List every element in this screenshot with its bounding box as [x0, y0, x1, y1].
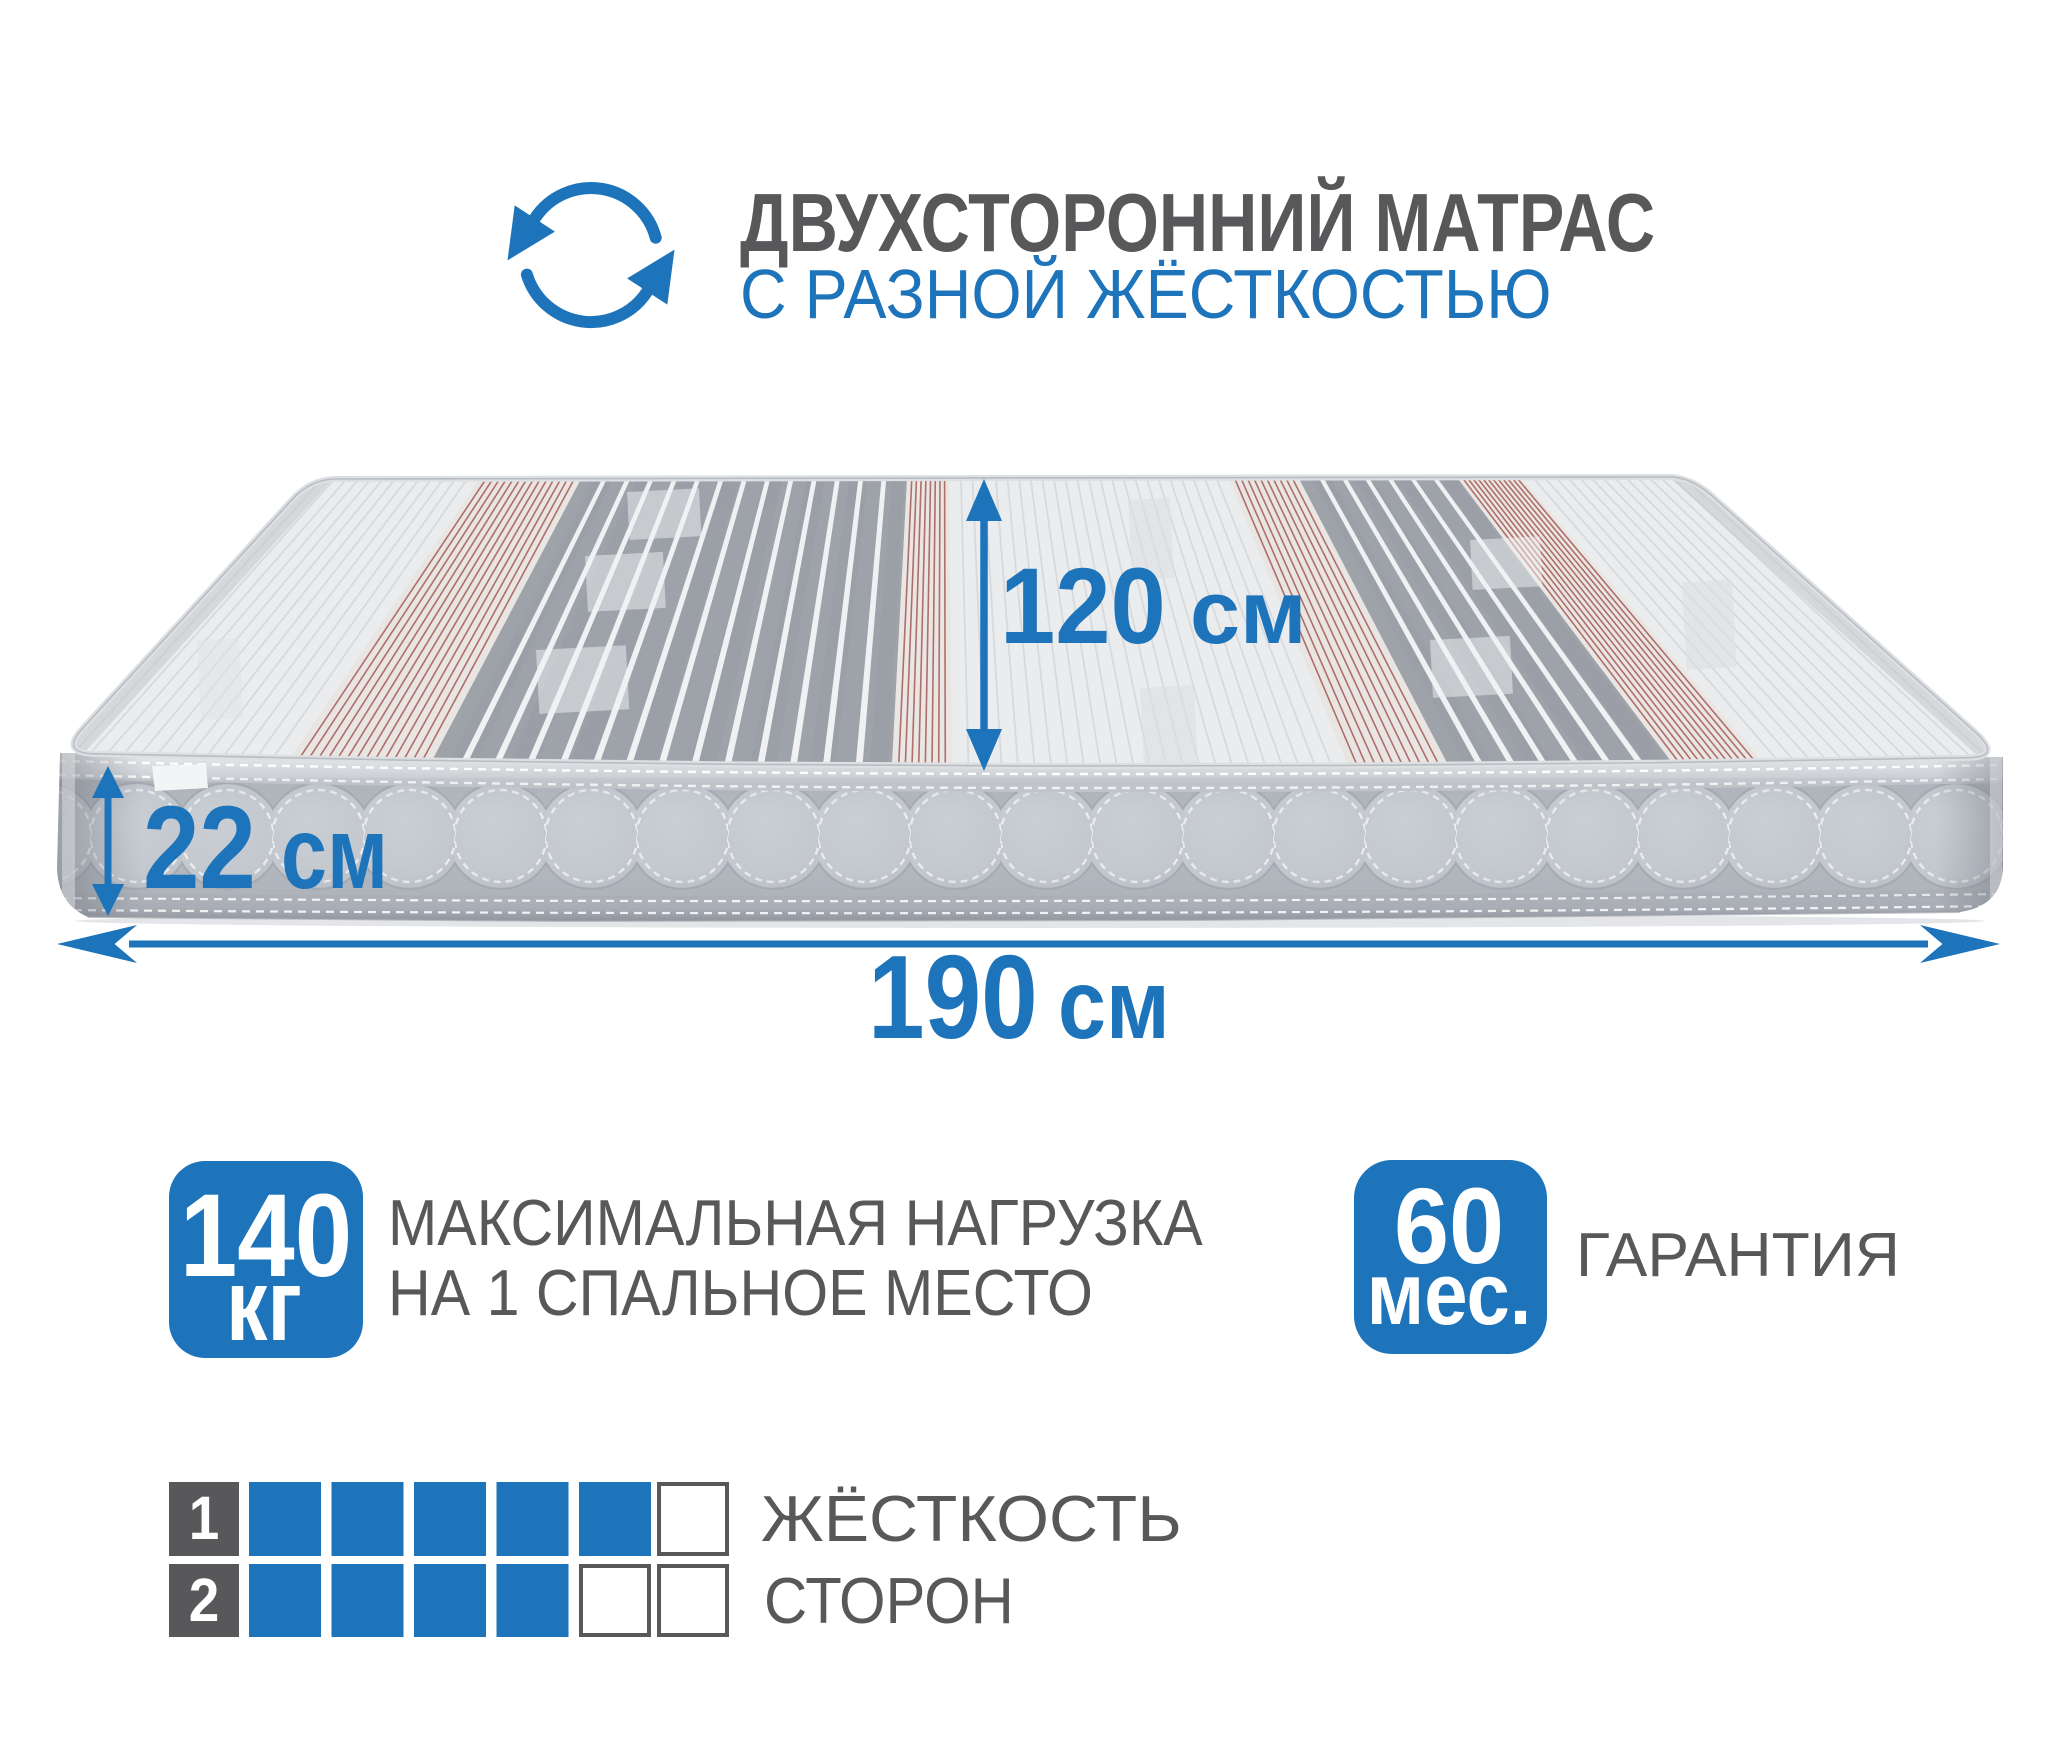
svg-text:190: 190: [868, 932, 1038, 1064]
svg-text:см: см: [1058, 949, 1170, 1059]
svg-text:мес.: мес.: [1367, 1245, 1532, 1343]
svg-text:СТОРОН: СТОРОН: [764, 1565, 1014, 1638]
svg-text:см: см: [281, 796, 388, 910]
svg-text:ЖЁСТКОСТЬ: ЖЁСТКОСТЬ: [761, 1483, 1182, 1555]
svg-text:кг: кг: [226, 1248, 302, 1362]
svg-text:МАКСИМАЛЬНАЯ НАГРУЗКА: МАКСИМАЛЬНАЯ НАГРУЗКА: [388, 1187, 1203, 1259]
svg-text:1: 1: [189, 1484, 220, 1552]
svg-text:С РАЗНОЙ ЖЁСТКОСТЬЮ: С РАЗНОЙ ЖЁСТКОСТЬЮ: [740, 255, 1551, 334]
svg-text:ГАРАНТИЯ: ГАРАНТИЯ: [1576, 1220, 1900, 1290]
svg-text:22: 22: [143, 782, 256, 914]
svg-text:120: 120: [1000, 545, 1166, 666]
svg-text:2: 2: [189, 1566, 220, 1634]
svg-text:НА 1 СПАЛЬНОЕ МЕСТО: НА 1 СПАЛЬНОЕ МЕСТО: [388, 1257, 1093, 1329]
svg-text:см: см: [1190, 563, 1307, 663]
